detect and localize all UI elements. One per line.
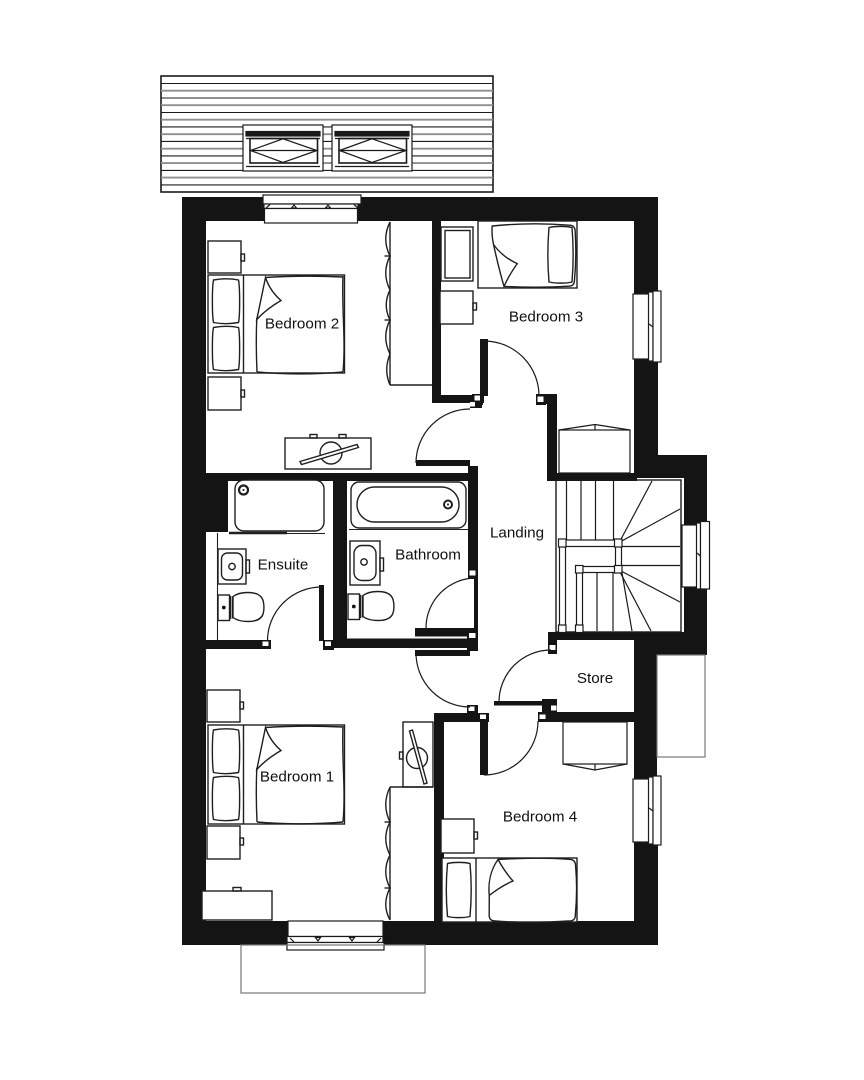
svg-text:Bedroom 3: Bedroom 3	[509, 309, 583, 326]
svg-text:Landing: Landing	[490, 525, 544, 542]
svg-text:Bathroom: Bathroom	[395, 547, 461, 564]
svg-text:Bedroom 2: Bedroom 2	[265, 316, 339, 333]
svg-text:Store: Store	[577, 670, 613, 687]
svg-text:Ensuite: Ensuite	[258, 557, 309, 574]
svg-text:Bedroom 4: Bedroom 4	[503, 809, 577, 826]
svg-text:Bedroom 1: Bedroom 1	[260, 769, 334, 786]
